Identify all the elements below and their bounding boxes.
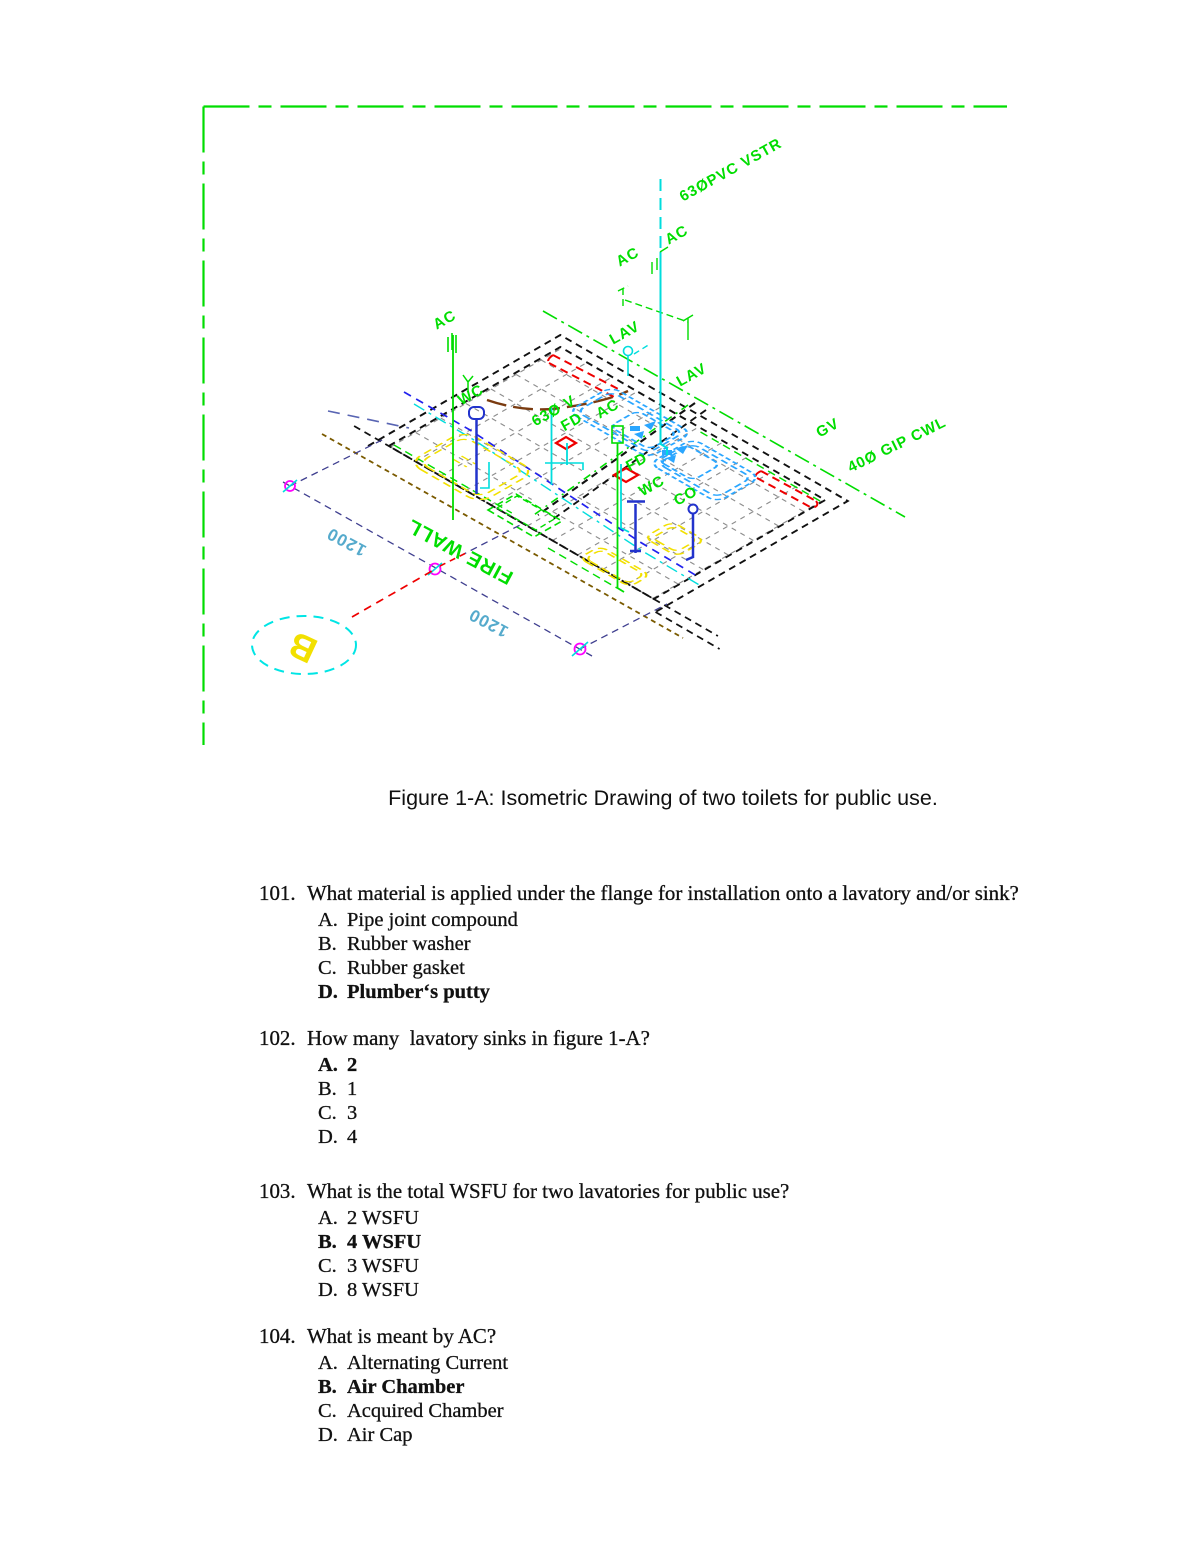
- svg-text:1200: 1200: [323, 524, 369, 560]
- svg-text:GV: GV: [813, 415, 842, 441]
- svg-text:LAV: LAV: [674, 360, 710, 390]
- svg-text:B: B: [282, 624, 323, 672]
- svg-text:AC: AC: [430, 307, 459, 333]
- svg-text:WC: WC: [455, 381, 487, 409]
- svg-text:LAV: LAV: [607, 318, 643, 348]
- svg-text:63ØPVC VSTR: 63ØPVC VSTR: [677, 135, 785, 205]
- svg-text:FIRE WALL: FIRE WALL: [403, 514, 516, 588]
- svg-text:1200: 1200: [465, 605, 511, 641]
- svg-text:40Ø GIP CWL: 40Ø GIP CWL: [845, 414, 949, 476]
- svg-text:AC: AC: [613, 244, 642, 270]
- svg-text:WC: WC: [636, 472, 668, 500]
- svg-text:AC: AC: [662, 222, 691, 248]
